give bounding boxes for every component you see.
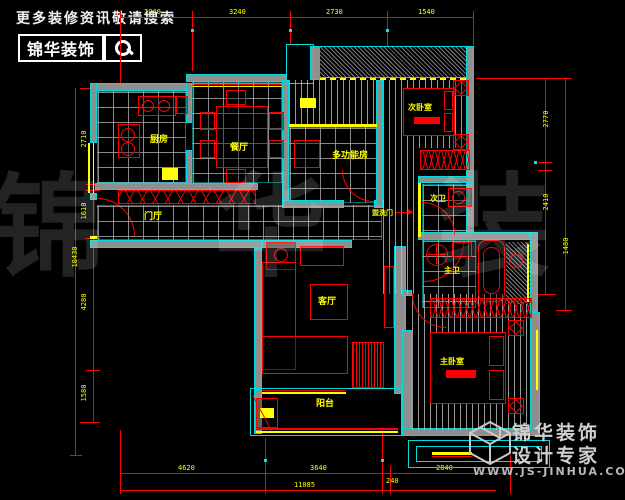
wall	[376, 80, 383, 208]
pillow	[489, 370, 504, 400]
balcony-rail	[256, 428, 398, 430]
dim-value: 2710	[80, 121, 88, 157]
bed2-mark	[414, 117, 440, 124]
logo-box: 锦华装饰	[18, 34, 104, 62]
dim-line	[120, 490, 496, 491]
dim-total: 11085	[294, 481, 315, 489]
bed1-mark	[446, 370, 476, 378]
wash-basin	[426, 244, 448, 266]
dim-dot	[381, 459, 384, 462]
wall	[90, 193, 97, 200]
basin-cross	[428, 254, 446, 255]
window-line	[262, 390, 346, 391]
cube-logo	[466, 418, 514, 468]
window-line	[527, 244, 529, 302]
dim-dot	[264, 459, 267, 462]
nightstand	[508, 398, 524, 414]
toilet-bowl	[452, 191, 465, 204]
logo-text: 锦华装饰	[27, 36, 95, 60]
rug	[352, 342, 384, 388]
burner	[121, 128, 135, 142]
wall	[402, 330, 412, 434]
dim-value: 4280	[80, 284, 88, 320]
dim-value: 2410	[542, 184, 550, 220]
search-box	[104, 34, 142, 62]
kitchen-label: 厨房	[150, 135, 168, 145]
dim-value: 1580	[80, 375, 88, 411]
balcony-label: 阳台	[316, 399, 334, 409]
window-line	[262, 392, 346, 394]
sink-basin	[158, 100, 170, 112]
dim-tick	[80, 422, 100, 423]
pillow	[489, 336, 504, 366]
window-line	[93, 143, 94, 193]
console-table	[300, 246, 344, 266]
wall	[254, 248, 262, 394]
dim-value: 2040	[144, 8, 161, 16]
nightstand	[453, 134, 469, 150]
footer-sub: 设计专家	[512, 441, 600, 468]
dim-tick	[538, 170, 552, 171]
basin-cross	[436, 246, 437, 264]
dim-tick	[290, 11, 291, 45]
floorplan-canvas: 锦 华 装 饰 更多装修资讯敬请搜索 锦华装饰 2040 3240 2730 1…	[0, 0, 625, 500]
wall	[186, 74, 286, 82]
window-line	[536, 330, 538, 390]
dim-dot	[534, 161, 537, 164]
dining-label: 餐厅	[230, 143, 248, 153]
dim-dot	[191, 29, 194, 32]
dim-dot	[386, 29, 389, 32]
dim-line	[120, 17, 473, 18]
website-url: WWW.JS-JINHUA.COM	[473, 465, 625, 478]
dim-value: 2770	[542, 101, 550, 137]
arrow-line	[396, 212, 408, 213]
dim-tick	[120, 430, 121, 494]
plant	[274, 248, 288, 262]
dim-tick	[538, 162, 552, 163]
wardrobe1	[430, 298, 532, 318]
bathtub-inner	[483, 247, 500, 294]
hall-floor	[97, 205, 382, 240]
wall	[90, 83, 190, 91]
dim-tick	[192, 11, 193, 71]
bath2-label: 次卫	[430, 194, 446, 204]
dim-value: 4620	[178, 464, 195, 472]
wash-door-label: 盥洗门	[372, 208, 393, 218]
wardrobe2	[420, 150, 470, 170]
living-label: 客厅	[318, 297, 336, 307]
dim-tick	[473, 11, 474, 45]
dim-total: 10430	[71, 236, 79, 278]
pillow	[444, 91, 453, 110]
dining-table	[216, 106, 268, 168]
dim-tick	[536, 294, 556, 295]
dim-tick	[265, 438, 266, 494]
hall-label: 门厅	[144, 212, 162, 222]
dim-tick	[70, 455, 82, 456]
wall	[95, 183, 258, 190]
dim-line	[120, 473, 510, 474]
chair	[200, 112, 215, 130]
dim-tick	[556, 310, 572, 311]
dim-value: 240	[386, 477, 399, 485]
kitchen-unit	[176, 96, 188, 114]
dim-value: 3240	[229, 8, 246, 16]
dim-dot	[289, 29, 292, 32]
multi-label: 多功能房	[332, 151, 368, 161]
balcony-rail	[256, 431, 398, 433]
wall	[418, 176, 474, 183]
dim-tick	[382, 430, 383, 494]
pillow	[444, 113, 453, 132]
chair	[226, 169, 246, 183]
burner	[121, 142, 135, 156]
wall	[90, 83, 97, 143]
shower-head	[509, 254, 523, 268]
closet-highlight	[300, 98, 316, 108]
sofa-corner	[262, 336, 348, 374]
nightstand	[508, 320, 524, 336]
bedroom1-label: 主卧室	[440, 357, 464, 367]
dim-value: 3640	[310, 464, 327, 472]
dim-tick	[86, 370, 100, 371]
chair	[226, 90, 246, 105]
dim-tick	[120, 11, 121, 85]
arrow-head	[408, 209, 413, 215]
kitchen-highlight	[162, 168, 178, 180]
chair	[269, 140, 284, 158]
bay-window	[286, 44, 314, 84]
wall	[90, 240, 262, 248]
shoe-cabinet	[118, 190, 256, 204]
dim-value: 1610	[80, 193, 88, 229]
dim-line	[565, 78, 566, 310]
tv-cabinet	[384, 266, 394, 328]
bedroom2-label: 次卧室	[408, 103, 432, 113]
search-icon	[114, 39, 132, 57]
dim-value: 1540	[418, 8, 435, 16]
multi-cabinet	[294, 140, 320, 168]
dim-tick	[476, 78, 572, 79]
nightstand	[453, 80, 469, 96]
sink-basin	[142, 100, 154, 112]
bath2-wall-line	[418, 183, 421, 237]
toilet	[452, 242, 472, 257]
dim-value: 1480	[562, 228, 570, 264]
chair	[269, 112, 284, 130]
exterior-hatch	[320, 46, 468, 78]
window-line	[88, 143, 90, 193]
dim-value: 2730	[326, 8, 343, 16]
chair	[200, 140, 215, 158]
bath1-label: 主卫	[444, 266, 460, 276]
threshold	[90, 236, 97, 239]
